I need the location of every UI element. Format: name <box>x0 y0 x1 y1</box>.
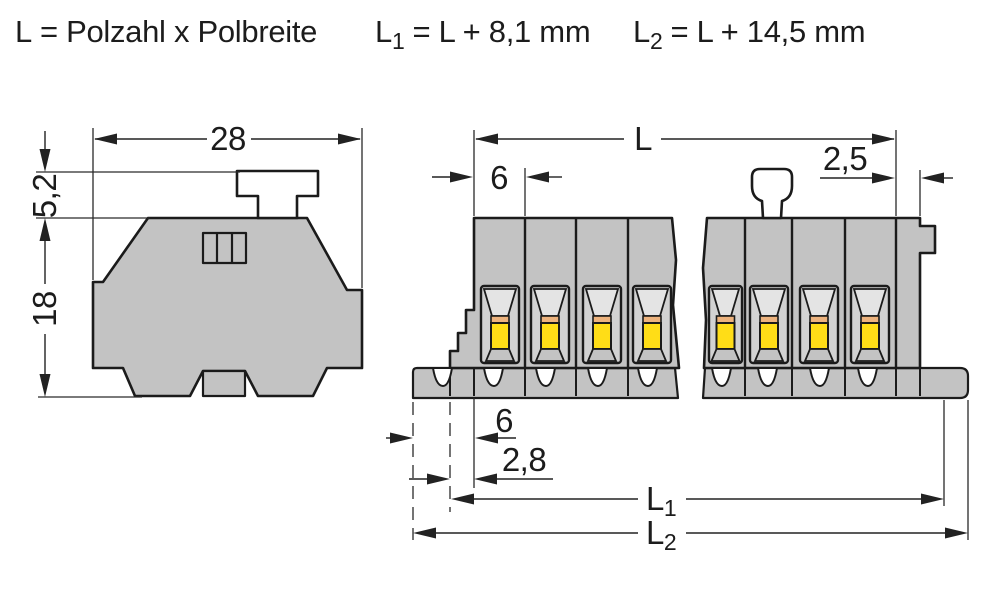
wire-entry-window <box>643 323 661 349</box>
wire-entry-window <box>593 323 611 349</box>
dim-label-foot-offset: 2,8 <box>502 441 546 478</box>
arrow-down <box>40 149 51 172</box>
arrow-right <box>450 172 473 183</box>
dim-l2: L2 <box>413 514 968 555</box>
clamp-release-band <box>861 316 879 323</box>
clamp-unit <box>800 286 838 363</box>
formula-pole-length: L= Polzahl x Polbreite <box>15 14 317 49</box>
arrow-left <box>921 173 944 184</box>
dim-label-total-height: 18 <box>26 291 63 327</box>
arrow-left <box>94 134 117 145</box>
wire-entry-window <box>861 323 879 349</box>
formula-row: L= Polzahl x Polbreite L1= L + 8,1 mm L2… <box>15 14 865 54</box>
arrow-right <box>872 134 895 145</box>
side-view: 28 5,2 18 <box>26 120 362 397</box>
base-rail-right <box>703 368 968 398</box>
arrow-down <box>40 374 51 397</box>
clamp-unit <box>709 286 742 363</box>
clamp-release-band <box>717 316 735 323</box>
arrow-left <box>451 494 474 505</box>
mounting-tab <box>237 171 318 218</box>
dim-label-pitch: 6 <box>490 159 508 196</box>
pull-tab <box>752 169 792 218</box>
clamp-release-band <box>541 316 559 323</box>
dim-label-upper-height: 5,2 <box>26 174 63 218</box>
clamp-release-band <box>491 316 509 323</box>
arrow-right <box>338 134 361 145</box>
dim-foot-6: 6 <box>386 402 516 444</box>
clamp-unit <box>750 286 788 363</box>
side-view-body <box>93 218 362 396</box>
wire-entry-window <box>491 323 509 349</box>
clamp-unit <box>583 286 621 363</box>
dim-l1: L1 <box>451 480 944 521</box>
arrow-left <box>413 528 436 539</box>
clamp-unit <box>633 286 671 363</box>
dim-end-2-5: 2,5 <box>820 140 953 216</box>
clamp-release-band <box>810 316 828 323</box>
clamp-release-band <box>760 316 778 323</box>
wire-entry-window <box>810 323 828 349</box>
rail-tongue <box>203 371 245 396</box>
dim-pitch-6: 6 <box>432 159 562 216</box>
dim-label-end-plate: 2,5 <box>823 140 867 177</box>
arrow-right <box>921 494 944 505</box>
arrow-right <box>390 433 413 444</box>
dim-label-foot-pitch: 6 <box>495 402 513 439</box>
arrow-right <box>872 173 895 184</box>
arrow-right <box>427 474 450 485</box>
terminal-block-dimension-drawing: L= Polzahl x Polbreite L1= L + 8,1 mm L2… <box>0 0 1000 592</box>
arrow-left <box>474 474 497 485</box>
dim-foot-2-8: 2,8 <box>409 441 553 485</box>
arrow-left <box>526 172 549 183</box>
arrow-up <box>40 218 51 241</box>
clamp-release-band <box>643 316 661 323</box>
arrow-left <box>475 134 498 145</box>
wire-entry-window <box>717 323 735 349</box>
front-view: L 6 2,5 <box>386 120 968 555</box>
dim-height-5-2: 5,2 <box>26 131 240 218</box>
dim-label-length: L <box>634 120 652 157</box>
wire-entry-window <box>760 323 778 349</box>
clamp-units <box>481 286 889 363</box>
technical-drawing-page: L= Polzahl x Polbreite L1= L + 8,1 mm L2… <box>0 0 1000 592</box>
formula-l1: L1= L + 8,1 mm <box>375 14 590 54</box>
clamp-unit <box>851 286 889 363</box>
formula-l2: L2= L + 14,5 mm <box>633 14 865 54</box>
clamp-unit <box>481 286 519 363</box>
clamp-unit <box>531 286 569 363</box>
dim-label-width: 28 <box>210 120 246 157</box>
arrow-right <box>945 528 968 539</box>
clamp-release-band <box>593 316 611 323</box>
wire-entry-window <box>541 323 559 349</box>
